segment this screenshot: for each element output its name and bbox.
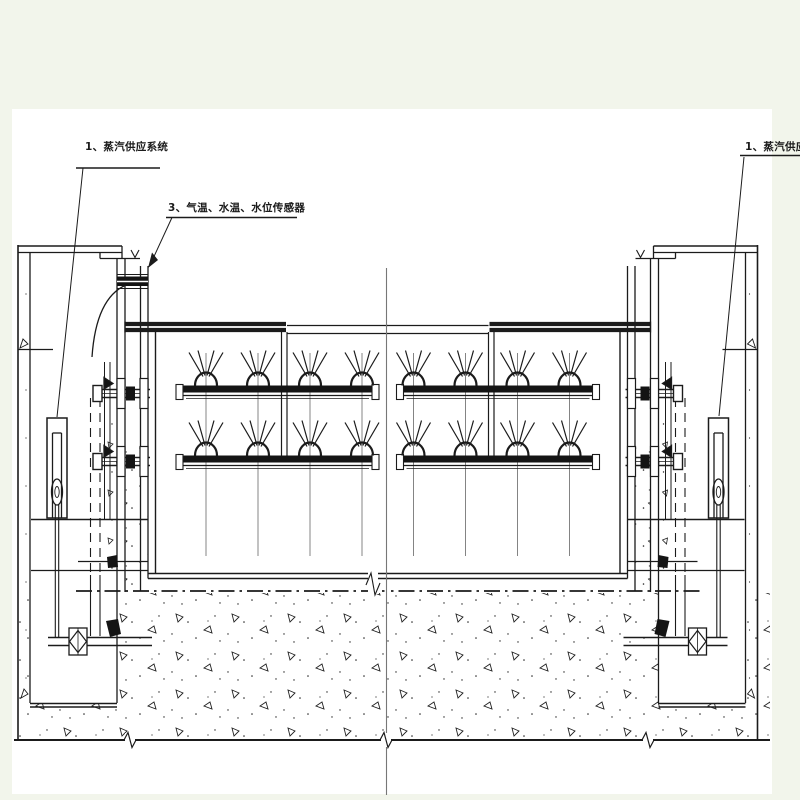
steam-supply-right-label: 1、蒸汽供应系统: [745, 140, 800, 153]
steam-supply-left-label: 1、蒸汽供应系统: [85, 140, 168, 153]
engineering-drawing-page: 1、蒸汽供应系统 3、气温、水温、水位传感器 1、蒸汽供应系统: [0, 0, 800, 800]
gate-bottom-break-mark: [366, 572, 380, 595]
sensors-label: 3、气温、水温、水位传感器: [168, 201, 305, 214]
gate-section-drawing: 1、蒸汽供应系统 3、气温、水温、水位传感器 1、蒸汽供应系统: [0, 0, 800, 800]
concrete-sill: [16, 593, 770, 740]
